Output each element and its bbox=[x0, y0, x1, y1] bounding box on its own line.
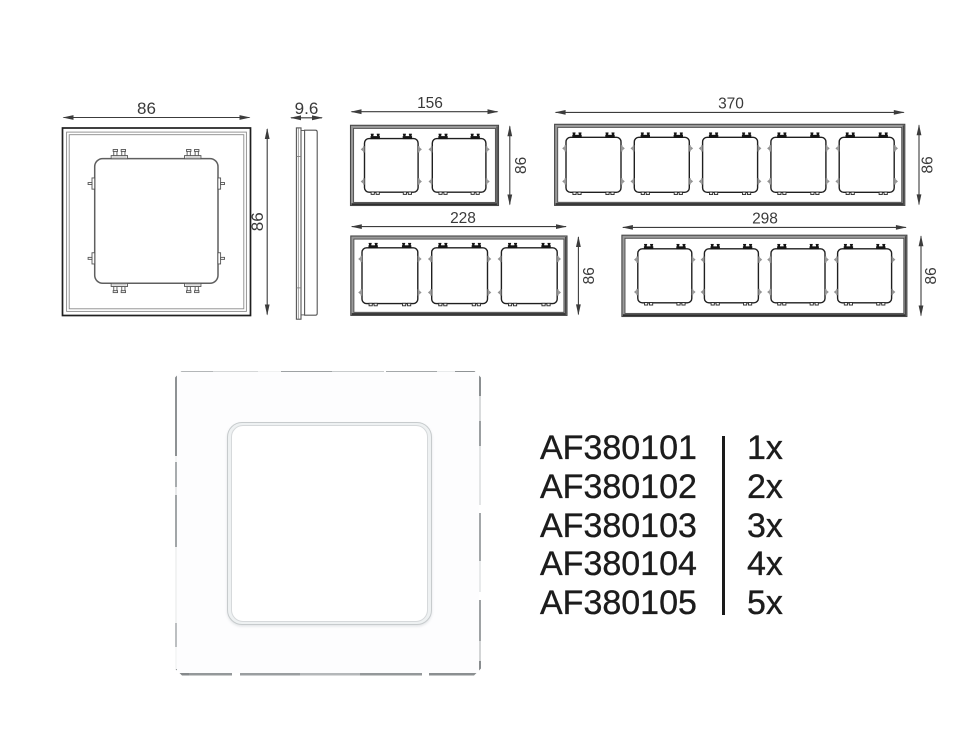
svg-text:370: 370 bbox=[718, 96, 744, 113]
svg-text:86: 86 bbox=[923, 267, 940, 284]
svg-text:228: 228 bbox=[450, 210, 476, 227]
svg-text:9.6: 9.6 bbox=[295, 99, 319, 118]
svg-text:86: 86 bbox=[137, 99, 156, 118]
svg-text:86: 86 bbox=[920, 156, 937, 173]
svg-text:298: 298 bbox=[752, 211, 778, 228]
svg-text:86: 86 bbox=[248, 212, 267, 231]
svg-text:86: 86 bbox=[581, 267, 598, 284]
svg-text:86: 86 bbox=[513, 157, 530, 174]
svg-text:156: 156 bbox=[417, 95, 443, 112]
